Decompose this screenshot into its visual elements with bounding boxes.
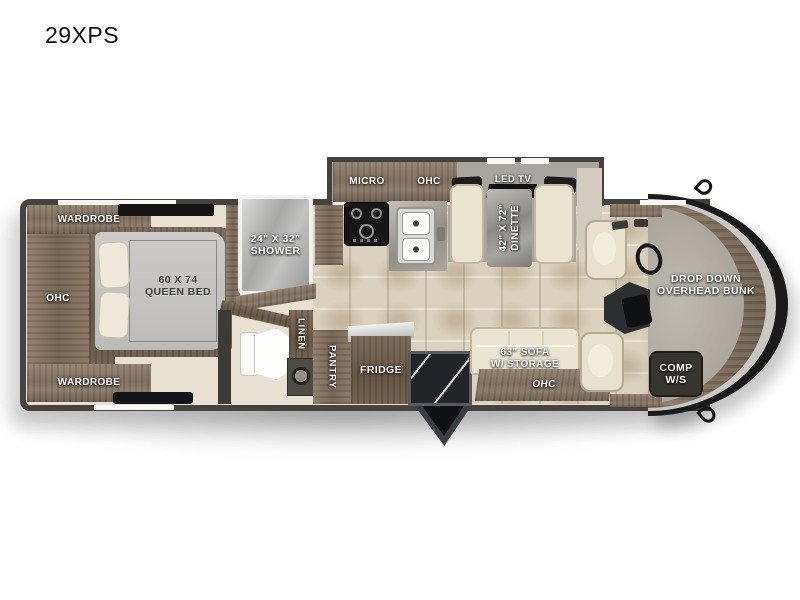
- shower-label: 24" X 32" SHOWER: [251, 233, 301, 258]
- washer-icon: [287, 358, 315, 396]
- sink-icon: [396, 207, 436, 265]
- fridge: FRIDGE: [351, 336, 411, 404]
- pillow: [98, 241, 130, 289]
- kitchen-counter: [389, 201, 447, 271]
- kitchen-ohc-label: OHC: [417, 176, 440, 188]
- driver-seat: [585, 220, 627, 280]
- bedroom-ohc-cabinet: OHC: [27, 234, 89, 364]
- bedroom-tv: [118, 204, 214, 216]
- bathroom-door-wall: [218, 310, 231, 404]
- floor-mat: [113, 392, 193, 404]
- fridge-label: FRIDGE: [360, 364, 402, 376]
- wardrobe-bottom-label: WARDROBE: [58, 377, 121, 389]
- computer-workstation: COMP W/S: [649, 351, 703, 397]
- linen-cabinet: LINEN: [289, 310, 313, 358]
- dinette-bench: [534, 184, 574, 264]
- cab-upper-trim: [610, 204, 662, 217]
- comp-ws-label: COMP W/S: [659, 362, 692, 387]
- bed-label: 60 X 74 QUEEN BED: [133, 274, 223, 299]
- window: [521, 158, 549, 164]
- shower: 24" X 32" SHOWER: [238, 195, 313, 295]
- queen-bed: 60 X 74 QUEEN BED: [95, 232, 225, 350]
- entry-door: [408, 351, 472, 406]
- bedroom-ohc-label: OHC: [46, 293, 69, 305]
- burner-icon: [359, 224, 374, 239]
- burner-icon: [351, 208, 362, 219]
- pantry: PANTRY: [313, 330, 351, 404]
- cooktop-knobs-icon: [353, 239, 381, 242]
- kitchen-wall-cabinet: [315, 205, 343, 265]
- dash-vent-icon: [634, 219, 648, 227]
- window: [640, 200, 686, 205]
- sink-basin-icon: [402, 238, 430, 261]
- side-mirror-icon: [694, 176, 716, 198]
- dinette-label: 42" X 72" DINETTE: [498, 204, 522, 252]
- dinette-table: 42" X 72" DINETTE: [487, 189, 532, 267]
- micro-label: MICRO: [349, 176, 384, 188]
- burner-icon: [371, 208, 382, 219]
- window: [487, 158, 515, 164]
- sofa-ohc-label: OHC: [531, 379, 556, 391]
- bunk-label: DROP DOWN OVERHEAD BUNK: [638, 273, 774, 298]
- ground-shadow: [14, 404, 754, 456]
- cooktop-icon: [344, 202, 389, 246]
- sofa: 63" SOFA W/ STORAGE: [470, 327, 580, 375]
- pantry-label: PANTRY: [326, 345, 337, 389]
- linen-label: LINEN: [296, 318, 307, 350]
- led-tv-label: LED TV: [488, 174, 538, 185]
- dinette-bench: [450, 184, 484, 264]
- window: [94, 405, 174, 410]
- sofa-back-cushions: [476, 331, 574, 347]
- floorplan-page: 29XPS WARDROBE OHC WARDROBE 60 X 74 QUEE…: [0, 0, 800, 600]
- faucet-icon: [437, 227, 445, 241]
- pillow: [98, 291, 130, 339]
- kitchen-overhead-cabinet: MICRO OHC: [333, 162, 457, 202]
- page-title: 29XPS: [45, 22, 119, 49]
- sofa-label: 63" SOFA W/ STORAGE: [472, 347, 578, 371]
- passenger-seat: [580, 332, 624, 392]
- wardrobe-top-label: WARDROBE: [58, 214, 121, 226]
- sink-basin-icon: [402, 212, 430, 235]
- washer-door-icon: [292, 367, 310, 385]
